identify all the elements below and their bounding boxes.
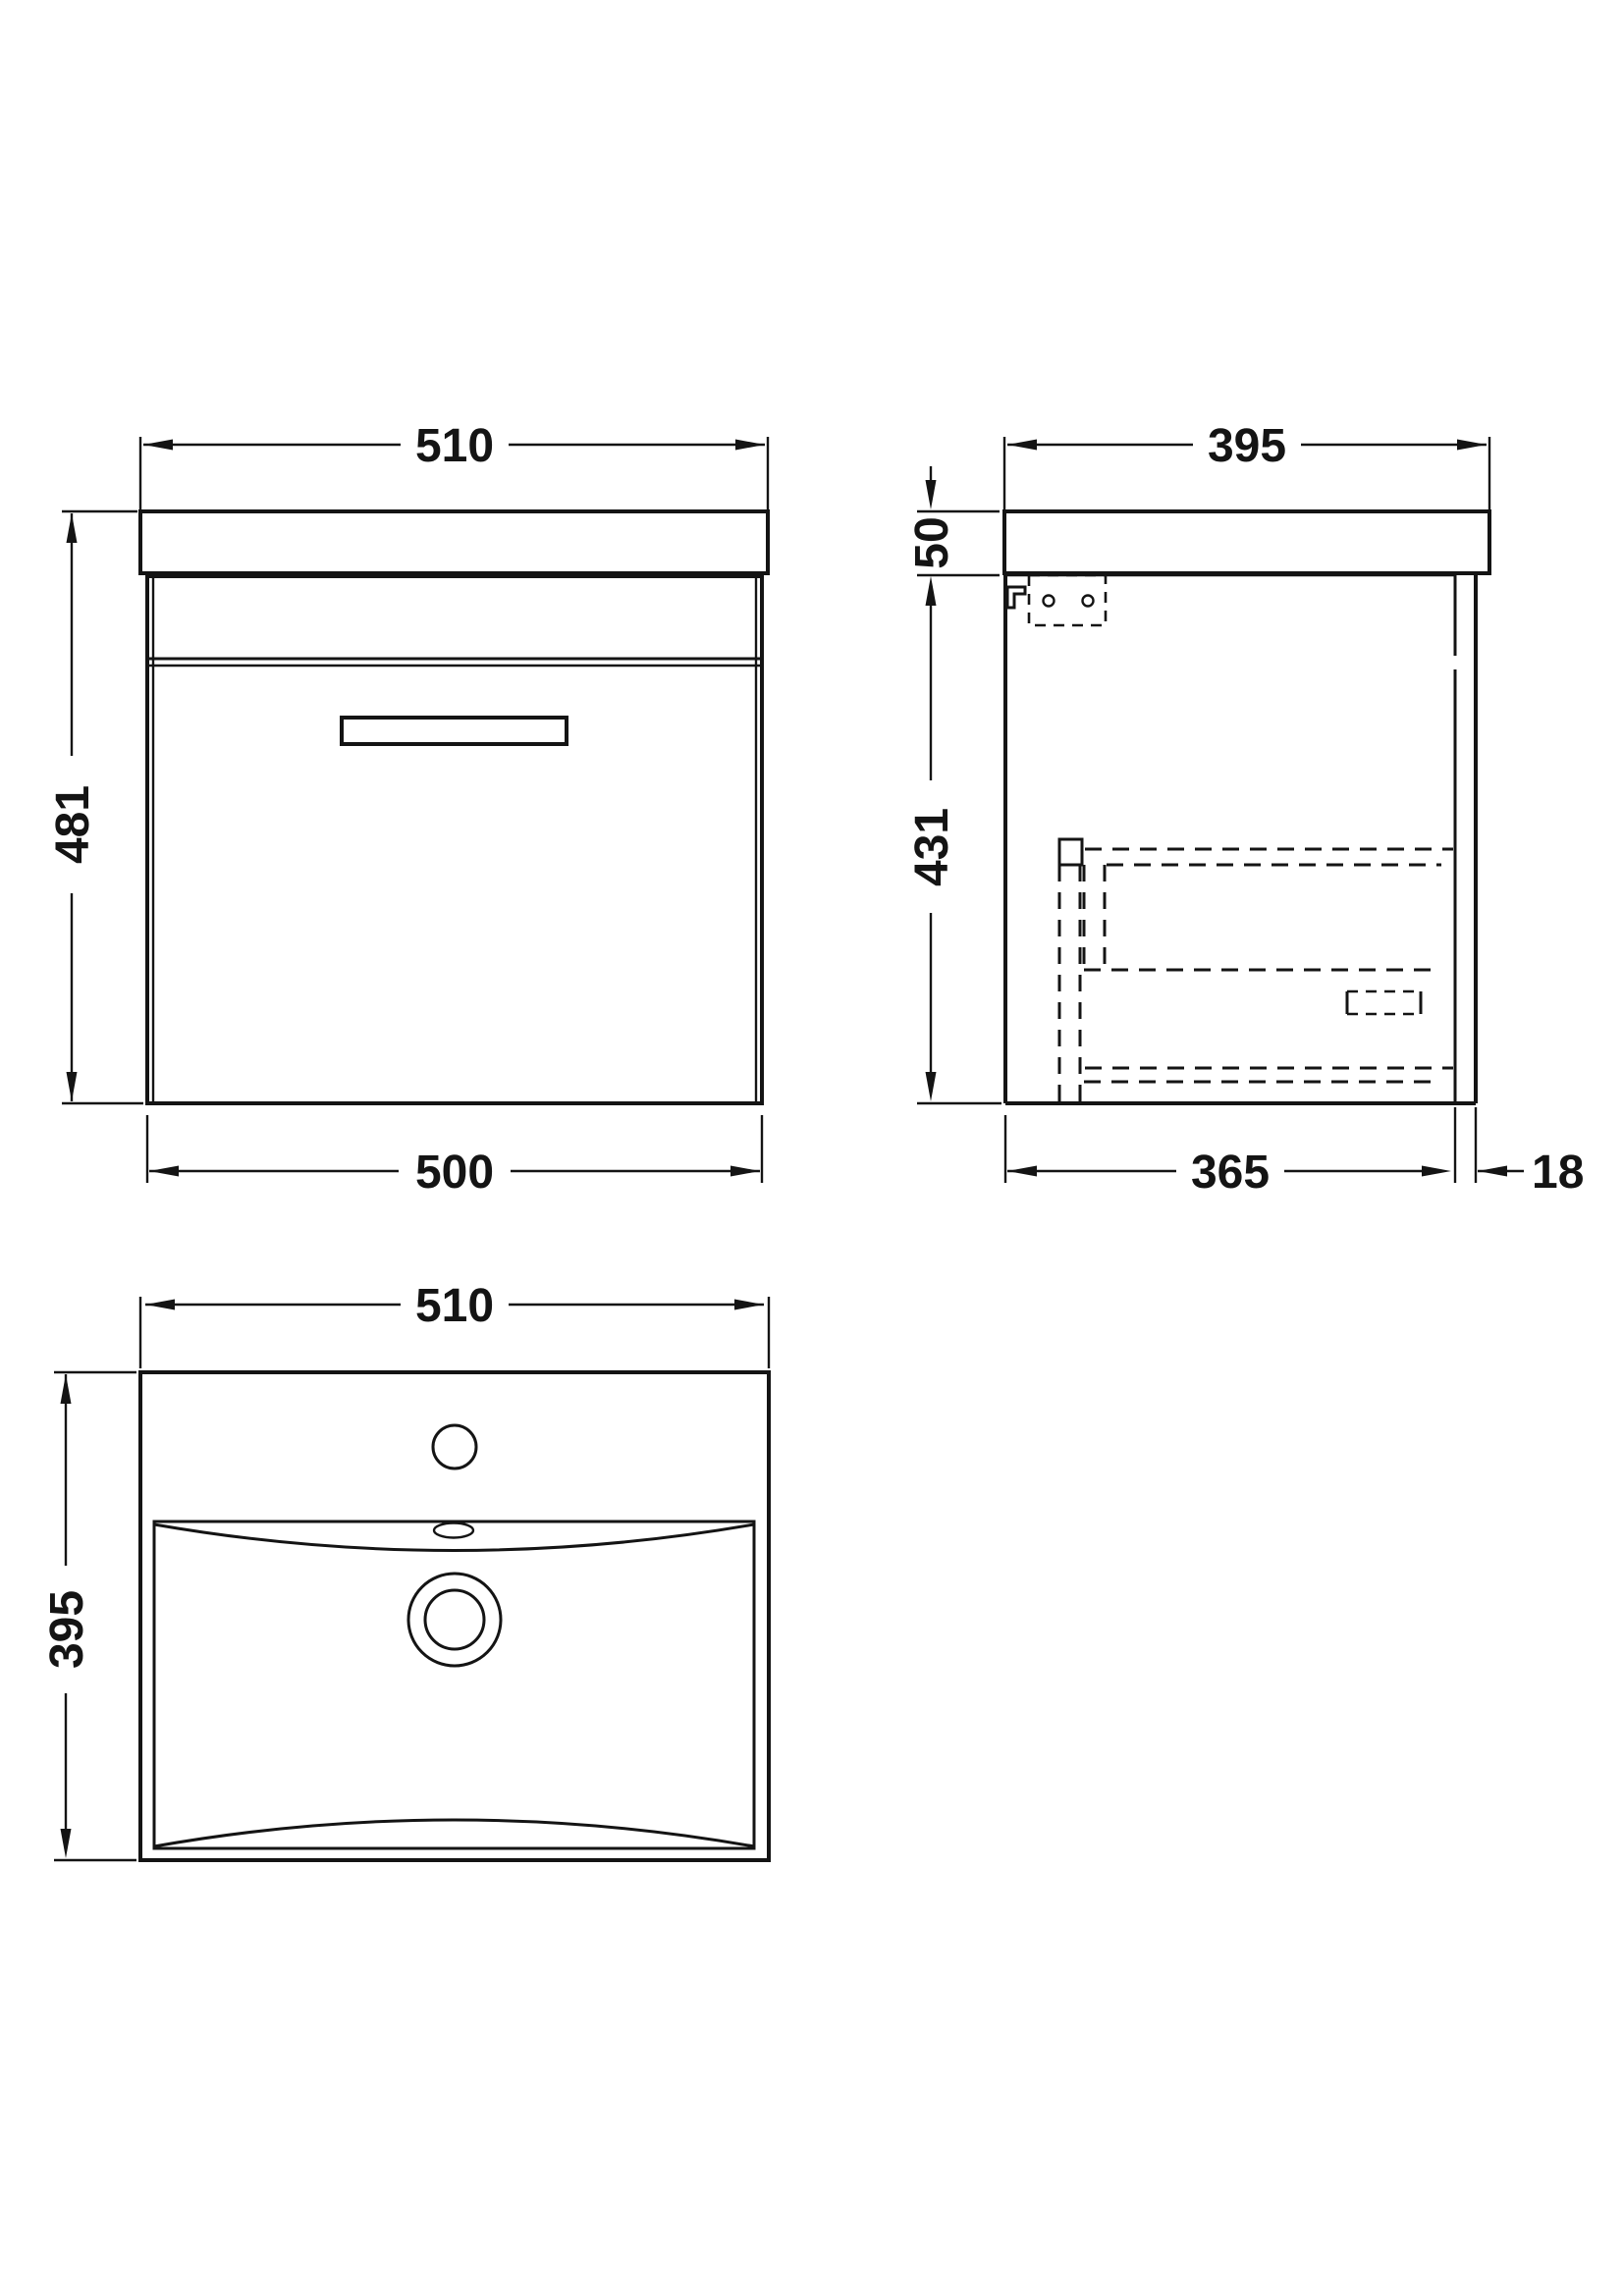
drain-waste-inner: [425, 1590, 484, 1649]
arrow-right-icon: [1422, 1166, 1451, 1177]
plan-width-label: 510: [415, 1280, 494, 1332]
vanity-dimension-drawing: 510 481: [0, 0, 1623, 2296]
front-drawer-handle: [342, 718, 567, 744]
arrow-up-icon: [926, 576, 937, 606]
arrow-right-icon: [734, 1300, 764, 1310]
overflow-slot: [434, 1523, 473, 1538]
plan-basin-outer: [140, 1372, 769, 1860]
technical-drawing-page: 510 481: [0, 0, 1623, 2296]
side-view: 395 50 431: [906, 420, 1584, 1199]
front-cabinet: [147, 576, 762, 1103]
plan-dim-depth-395: 395: [41, 1372, 136, 1860]
front-width-bottom-label: 500: [415, 1147, 494, 1199]
side-dim-depth-395: 395: [1004, 420, 1489, 509]
side-dim-depth-365: 365: [1005, 1107, 1455, 1199]
front-width-top-label: 510: [415, 420, 494, 472]
front-view: 510 481: [47, 420, 768, 1199]
drawer-front-top-cap: [1059, 839, 1082, 865]
side-dim-back-18: 18: [1476, 1107, 1584, 1199]
side-worktop-thickness-label: 50: [906, 516, 958, 568]
front-dim-width-510: 510: [140, 420, 768, 509]
arrow-down-icon: [67, 1072, 78, 1101]
front-drawer-divider: [147, 659, 762, 666]
arrow-down-icon: [926, 480, 937, 509]
side-cabinet-depth-label: 365: [1191, 1147, 1270, 1199]
front-dim-width-500: 500: [147, 1115, 762, 1199]
side-drawer-hidden-lines: [1059, 839, 1453, 1103]
arrow-right-icon: [730, 1166, 760, 1177]
arrow-right-icon: [1457, 440, 1487, 451]
arrow-left-icon: [1478, 1166, 1507, 1177]
front-dim-height-481: 481: [47, 511, 143, 1103]
bracket-hook-icon: [1007, 587, 1025, 608]
front-worktop: [140, 511, 768, 573]
front-height-label: 481: [47, 785, 99, 864]
arrow-left-icon: [149, 1166, 179, 1177]
arrow-down-icon: [926, 1072, 937, 1101]
plan-dim-width-510: 510: [140, 1280, 769, 1368]
plan-view: 510 395: [41, 1280, 769, 1860]
arrow-down-icon: [61, 1829, 72, 1858]
arrow-left-icon: [1007, 440, 1037, 451]
drawer-runner-slot: [1347, 991, 1421, 1014]
side-worktop: [1004, 511, 1489, 573]
bracket-screw-hole: [1083, 596, 1094, 607]
side-dim-height-431: 431: [906, 606, 1001, 1103]
arrow-left-icon: [1007, 1166, 1037, 1177]
faucet-hole: [433, 1425, 476, 1468]
arrow-left-icon: [143, 440, 173, 451]
side-dim-thickness-50: 50: [906, 466, 1000, 606]
bowl-inner-rect: [154, 1522, 754, 1848]
arrow-up-icon: [61, 1374, 72, 1404]
bowl-front-slope-curve: [154, 1820, 754, 1846]
arrow-left-icon: [145, 1300, 175, 1310]
side-back-rail-label: 18: [1532, 1147, 1584, 1199]
side-wall-bracket: [1007, 575, 1106, 625]
plan-basin-bowl: [154, 1522, 754, 1848]
arrow-right-icon: [735, 440, 765, 451]
plan-depth-label: 395: [41, 1590, 93, 1669]
side-depth-top-label: 395: [1208, 420, 1286, 472]
arrow-up-icon: [67, 513, 78, 543]
bracket-screw-hole: [1044, 596, 1055, 607]
side-cabinet-height-label: 431: [906, 808, 958, 886]
drain-waste-outer: [408, 1574, 501, 1666]
